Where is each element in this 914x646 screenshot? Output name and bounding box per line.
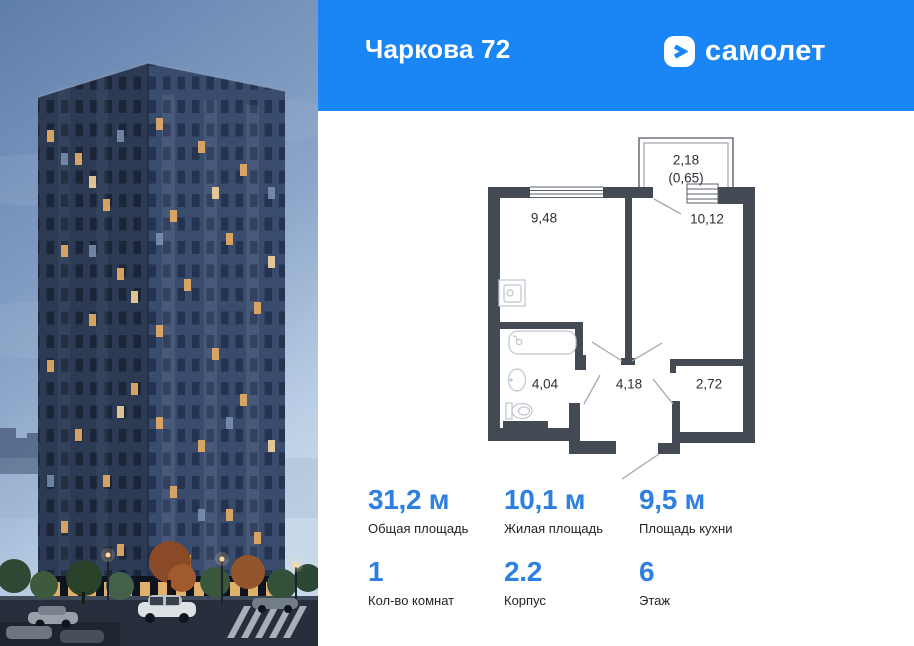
bathtub-icon bbox=[509, 331, 576, 354]
stat-building-label: Корпус bbox=[504, 593, 636, 608]
room-area-living-room: 10,12 bbox=[690, 212, 724, 227]
samolet-logo-icon bbox=[664, 36, 695, 67]
stat-building: 2.2 Корпус bbox=[504, 558, 636, 608]
stat-total-area-value: 31,2 м bbox=[368, 486, 500, 514]
room-area-kitchen: 9,48 bbox=[531, 211, 557, 226]
tower bbox=[38, 63, 285, 624]
room-area-bathroom: 4,04 bbox=[532, 377, 558, 392]
fixtures bbox=[499, 280, 576, 419]
stat-building-value: 2.2 bbox=[504, 558, 636, 586]
balcony-reduced-area-label: (0,65) bbox=[668, 171, 703, 186]
room-area-wardrobe: 2,72 bbox=[696, 377, 722, 392]
window-balcony bbox=[687, 184, 718, 203]
project-title: Чаркова 72 bbox=[365, 34, 510, 65]
listing-card: Чаркова 72 самолет bbox=[0, 0, 914, 646]
stat-living-area: 10,1 м Жилая площадь bbox=[504, 486, 636, 536]
stat-rooms-count: 1 Кол-во комнат bbox=[368, 558, 500, 608]
stat-kitchen-area: 9,5 м Площадь кухни bbox=[639, 486, 771, 536]
car-parked-1 bbox=[6, 626, 52, 639]
kitchen-sink-icon bbox=[499, 280, 525, 306]
stat-floor-label: Этаж bbox=[639, 593, 771, 608]
washbasin-icon bbox=[509, 369, 526, 391]
stat-floor-value: 6 bbox=[639, 558, 771, 586]
window-kitchen bbox=[530, 186, 603, 198]
brand-logo: самолет bbox=[664, 36, 826, 67]
stat-kitchen-area-value: 9,5 м bbox=[639, 486, 771, 514]
car-parked-2 bbox=[60, 630, 104, 643]
building-photo bbox=[0, 0, 318, 646]
balcony-area-label: 2,18 bbox=[673, 153, 699, 168]
brand-name: самолет bbox=[705, 36, 826, 67]
stat-total-area: 31,2 м Общая площадь bbox=[368, 486, 500, 536]
stat-floor: 6 Этаж bbox=[639, 558, 771, 608]
stat-living-area-value: 10,1 м bbox=[504, 486, 636, 514]
door-swings bbox=[584, 199, 681, 479]
stat-total-area-label: Общая площадь bbox=[368, 521, 500, 536]
room-area-hallway: 4,18 bbox=[616, 377, 642, 392]
toilet-icon bbox=[506, 403, 532, 419]
stat-living-area-label: Жилая площадь bbox=[504, 521, 636, 536]
stat-kitchen-area-label: Площадь кухни bbox=[639, 521, 771, 536]
header-banner: Чаркова 72 самолет bbox=[318, 0, 914, 111]
stat-rooms-count-label: Кол-во комнат bbox=[368, 593, 500, 608]
stat-rooms-count-value: 1 bbox=[368, 558, 500, 586]
plan-walls bbox=[488, 187, 755, 454]
